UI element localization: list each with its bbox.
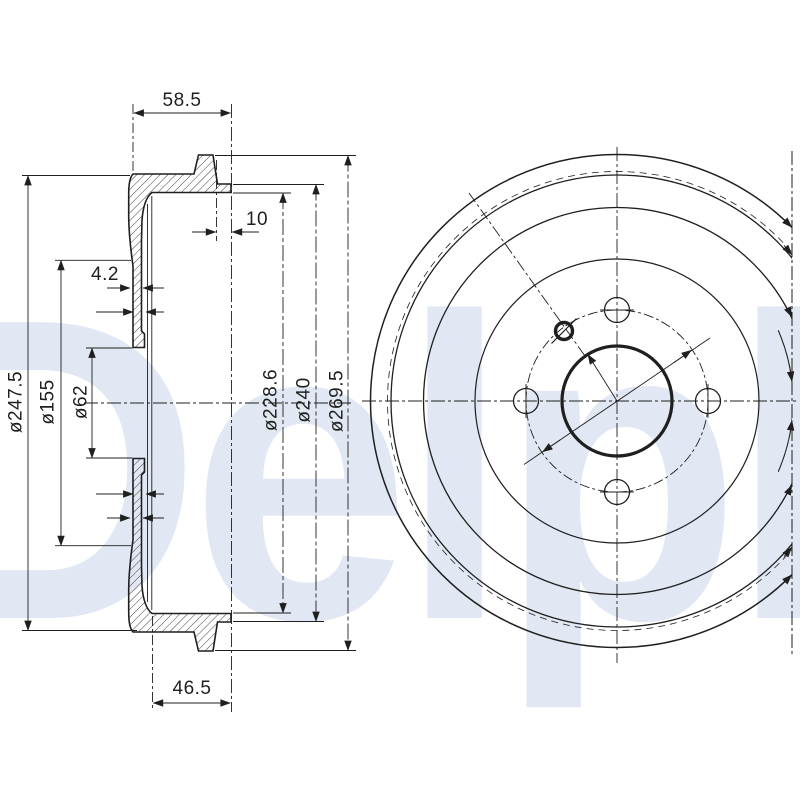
dim-label-inner-depth: 46.5 [173, 678, 212, 699]
dim-label-top-width: 58.5 [163, 90, 202, 111]
dim-label-dia-inner: ø228.6 [261, 369, 282, 431]
dim-label-dia-bore: ø62 [71, 385, 92, 419]
dim-label-wall-thickness: 4.2 [91, 264, 119, 285]
dim-label-dia-outer: ø269.5 [327, 370, 348, 432]
dim-label-offset: 10 [246, 209, 268, 230]
dim-label-dia-lip: ø240 [294, 377, 315, 422]
drawing-canvas: Delphi [0, 0, 800, 800]
dim-label-dia-recess: ø155 [38, 379, 59, 424]
brake-drum-technical-drawing: Delphi [0, 0, 800, 800]
dim-label-dia-flange: ø247.5 [6, 371, 27, 433]
